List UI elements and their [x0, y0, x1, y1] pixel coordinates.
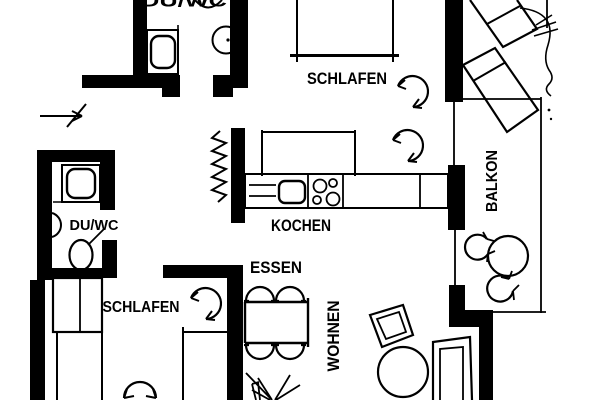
- wall-segment: [448, 165, 465, 230]
- label-living: WOHNEN: [325, 301, 343, 372]
- door-swing-arrowhead: [398, 80, 422, 108]
- dining-chair: [244, 345, 276, 359]
- lounge-chair-crossbar: [487, 6, 520, 24]
- plant: [520, 8, 558, 96]
- dining-chair: [244, 287, 276, 301]
- entrance-arrow: [40, 104, 86, 127]
- radiator-zigzag: [212, 131, 226, 202]
- balcony-table: [488, 236, 528, 276]
- plant-dot: [548, 109, 551, 112]
- door-swing-arc: [398, 76, 428, 107]
- label-bedroom-top: SCHLAFEN: [307, 70, 387, 88]
- wall-segment: [449, 285, 465, 327]
- bed: [297, 0, 393, 62]
- wall-segment: [231, 128, 245, 223]
- door-swing-arc: [124, 382, 156, 398]
- bedroom-bottom-furniture: [53, 278, 227, 400]
- label-bath-middle: DU/WC: [70, 218, 120, 234]
- wall-segment: [445, 0, 463, 102]
- wall-segment: [82, 75, 180, 88]
- dining-furniture: [244, 287, 308, 400]
- armchair-inner: [377, 312, 406, 339]
- door-swing-arc: [191, 288, 221, 319]
- door-swing-arrowhead: [124, 389, 156, 398]
- door-swing-arrowhead: [393, 134, 417, 162]
- lounge-chair-crossbar: [473, 62, 506, 81]
- wall-segment: [30, 280, 45, 400]
- balcony-furniture: [463, 0, 558, 302]
- floor-plan-page: DU/WC SCHLAFEN KOCHEN ESSEN WOHNEN BALKO…: [0, 0, 600, 400]
- plant-dot: [550, 118, 552, 120]
- wall-cabinet: [262, 130, 355, 176]
- wall-segment: [213, 75, 248, 88]
- door-swing-arc: [393, 130, 423, 161]
- dining-chair: [274, 345, 306, 359]
- wall-segment: [227, 265, 243, 400]
- balcony-chair: [487, 276, 513, 302]
- wall-segment: [213, 88, 233, 97]
- bed: [183, 327, 227, 400]
- lounge-chair: [463, 48, 538, 132]
- wall-segment: [37, 150, 52, 280]
- wardrobe: [53, 278, 102, 332]
- bedroom-top-furniture: [290, 0, 428, 108]
- counter: [245, 174, 448, 208]
- label-bedroom-bottom: SCHLAFEN: [103, 299, 180, 316]
- coffee-table: [378, 347, 428, 397]
- floor-plan: DU/WC SCHLAFEN KOCHEN ESSEN WOHNEN BALKO…: [0, 0, 600, 400]
- armchair-outer: [370, 305, 413, 347]
- balcony-chair: [465, 235, 488, 260]
- shower-tray: [151, 36, 175, 68]
- wall-segment: [162, 88, 180, 97]
- sofa-outer: [433, 337, 472, 400]
- dining-table: [245, 298, 308, 347]
- wall-segment: [100, 162, 115, 210]
- washbasin: [52, 213, 61, 237]
- kitchen-furniture: [212, 130, 448, 208]
- bathroom-top-fixtures: [147, 0, 240, 74]
- bed: [57, 327, 102, 400]
- label-kitchen: KOCHEN: [271, 217, 331, 235]
- label-balcony: BALKON: [484, 150, 501, 212]
- label-dining: ESSEN: [250, 259, 302, 277]
- wall-segment: [133, 0, 147, 88]
- lounge-chair: [470, 0, 537, 47]
- plant: [246, 373, 300, 400]
- dining-chair: [274, 287, 306, 301]
- door-swing-arrowhead: [191, 292, 215, 320]
- sofa-inner: [440, 347, 463, 400]
- wall-segment: [479, 327, 493, 400]
- label-bath-top: DU/WC: [141, 0, 227, 11]
- shower-tray: [67, 169, 95, 198]
- washbasin-tap: [226, 38, 229, 41]
